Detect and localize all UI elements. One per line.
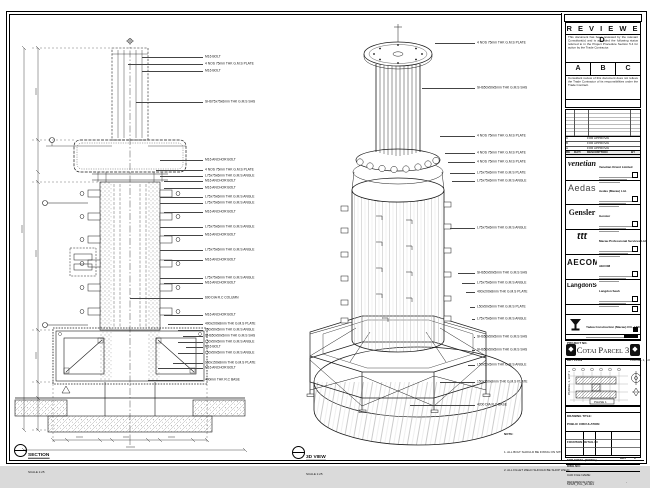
reviewed-stamp: R E V I E W E D This document has been r…	[565, 22, 641, 108]
company-checkbox	[632, 246, 638, 252]
leader-line	[468, 365, 475, 366]
leader-line	[173, 363, 203, 364]
leader-line	[136, 102, 203, 103]
rev-col-divider	[630, 110, 631, 136]
annotation-label: 4 NOS 75mm THK G.M.S PLATE	[205, 62, 254, 65]
status-option-c: C	[616, 63, 640, 75]
leader-line	[422, 88, 475, 89]
leader-line	[160, 176, 203, 177]
ttt-logo: ttt	[567, 233, 597, 241]
leader-line	[164, 212, 203, 213]
annotation-label: L50x50x5mm THK G.M.S ANGLE	[205, 351, 254, 354]
leader-line	[445, 153, 475, 154]
company-checkbox	[632, 221, 638, 227]
rev-description: FOR APPROVAL	[587, 137, 609, 139]
annotation-label: L50x50x5mm THK G.M.S ANGLE	[205, 340, 254, 343]
annotation-label: M16 ANCHOR BOLT	[205, 179, 236, 182]
iso-view: 4 NOS 75mm THK G.M.S PLATESHS50x50x5mm T…	[290, 10, 562, 460]
leader-line	[160, 203, 203, 204]
company-checkbox	[632, 271, 638, 277]
section-title-text: SECTION	[28, 453, 49, 459]
leader-line	[160, 227, 203, 228]
leader-line	[148, 380, 203, 381]
rev-date	[574, 142, 581, 144]
dwg-no-row: DWG NO: 51525_PCL_95-004 REV C	[566, 456, 640, 465]
leader-line	[160, 160, 203, 161]
project-title-banner: ◆ Cotai Parcel 3 ◆	[565, 339, 641, 360]
leader-line	[164, 315, 203, 316]
company-name: Aedas (Macau) Ltd.	[599, 190, 627, 193]
annotation-label: L75x75x6mm THK G.M.S ANGLE	[477, 226, 526, 229]
leader-line	[160, 278, 203, 279]
title-block-panel: DO NOT SCALE DRAWING. VERIFY ALL DIMENSI…	[561, 13, 644, 460]
company-row-aecom: AECOM AECOM	[565, 254, 641, 280]
status-option-b: B	[591, 63, 616, 75]
leader-line	[462, 283, 475, 284]
reference-label: REFERENCE DWG:	[567, 481, 595, 484]
key-plan-label: KEY PLAN	[567, 359, 582, 362]
annotation-label: M16 BOLT	[205, 345, 221, 348]
leader-line	[160, 250, 203, 251]
note-item-1: 1. ALL BOLT SHOULD BE FIXING ON SITE.	[504, 451, 563, 454]
leader-line	[450, 173, 475, 174]
annotation-label: SHS50x50x5mm THK G.M.S SHS	[477, 335, 527, 338]
annotation-label: L75x75x6mm THK G.M.S ANGLE	[205, 201, 254, 204]
rev-by	[631, 142, 636, 144]
annotation-label: SHS50x50x5mm THK G.M.S SHS	[477, 271, 527, 274]
leader-line	[160, 197, 203, 198]
contractor-logo-icon	[568, 317, 583, 332]
leader-line	[164, 188, 203, 189]
aecom-logo: AECOM	[567, 258, 597, 267]
leader-line	[472, 319, 475, 320]
annotation-label: L75x75x6mm THK G.M.S PLATE	[477, 171, 526, 174]
leader-line	[158, 368, 203, 369]
section-view-title: SECTION SCALE 1:25	[28, 444, 61, 480]
annotation-label: L75x75x6mm THK G.M.S ANGLE	[205, 248, 254, 251]
rev-letter: B	[566, 142, 570, 144]
annotation-label: L75x75x6mm THK G.M.S ANGLE	[477, 317, 526, 320]
leader-line	[178, 330, 203, 331]
leader-line	[183, 336, 203, 337]
iso-drawing	[290, 10, 562, 460]
section-detail-bubble	[14, 444, 27, 457]
annotation-label: 4200 DIA R.C BASE	[477, 403, 507, 406]
rev-value: C	[634, 457, 636, 460]
rev-description: FOR APPROVAL	[587, 142, 609, 144]
rev-col-divider	[574, 110, 575, 136]
drawing-title-label: DRAWING TITLE:	[567, 415, 592, 418]
project-title: Cotai Parcel 3	[577, 345, 629, 355]
leader-line	[164, 283, 203, 284]
annotation-label: 4 NOS 75mm THK G.M.S PLATE	[477, 41, 526, 44]
drawing-title-line-2: FOUNTAIN DETAIL IN	[567, 441, 598, 444]
annotation-label: 4 NOS 75mm THK G.M.S PLATE	[477, 151, 526, 154]
annotation-label: L75x75x6mm THK G.M.S ANGLE	[477, 281, 526, 284]
iso-title-text: 3D VIEW	[306, 455, 326, 461]
key-plan-phase: PHASE 1	[594, 401, 607, 404]
company-name: Macau Professional Services Ltd.	[599, 240, 647, 243]
annotation-label: 600 DIA R.C COLUMN	[205, 296, 239, 299]
annotation-label: L75x75x6mm THK G.M.S ANGLE	[205, 174, 254, 177]
annotation-label: 400mm THK R.C BASE	[205, 378, 240, 381]
company-row-venetian: venetian Venetian Orient Limited	[565, 154, 641, 181]
leader-line	[458, 273, 475, 274]
leader-line	[440, 382, 475, 383]
key-plan-parcel-label: PARCEL 1, LOT 2	[630, 359, 650, 362]
revision-table-empty	[565, 109, 641, 137]
venetian-logo: venetian	[567, 159, 597, 168]
annotation-label: L75x75x6mm THK G.M.S ANGLE	[205, 225, 254, 228]
annotation-label: 400x200x8mm THK G.M.S PLATE	[205, 322, 255, 325]
annotation-label: 4 NOS 75mm THK G.M.S PLATE	[477, 134, 526, 137]
annotation-label: M16 ANCHOR BOLT	[205, 233, 236, 236]
revision-rows: C FOR APPROVAL B FOR APPROVAL A FOR APPR…	[565, 136, 641, 151]
leader-line	[164, 181, 203, 182]
annotation-label: L75x75x6mm THK G.M.S ANGLE	[477, 179, 526, 182]
leader-line	[164, 235, 203, 236]
status-option-a: A	[566, 63, 591, 75]
annotation-label: M16 ANCHOR BOLT	[205, 281, 236, 284]
leader-line	[452, 181, 475, 182]
annotation-label: 150x150x8mm THK G.M.S PLATE	[205, 361, 255, 364]
key-plan-parcel-side: PARCEL 1, LOT 1	[568, 371, 571, 395]
rev-by	[631, 137, 636, 139]
annotation-label: L75x75x6mm THK G.M.S ANGLE	[205, 276, 254, 279]
project-no-value-block	[624, 334, 638, 338]
rev-label: REV	[620, 457, 626, 460]
leader-line	[474, 337, 475, 338]
section-view: M16 BOLT4 NOS 75mm THK G.M.S PLATEM16 BO…	[8, 10, 290, 460]
banner-ornament-right: ◆	[630, 344, 640, 356]
note-item-2: 2. ALL FILLET WELD SHOULD BE SHOP WELD.	[504, 469, 570, 472]
company-checkbox	[632, 296, 638, 302]
leader-line	[186, 347, 203, 348]
leader-line	[178, 353, 203, 354]
annotation-label: M16 ANCHOR BOLT	[205, 158, 236, 161]
section-drawing	[8, 10, 290, 460]
reviewed-paragraph-1: This document has been reviewed by the r…	[566, 35, 640, 62]
rev-col-divider	[588, 110, 589, 136]
disclaimer-strip: DO NOT SCALE DRAWING. VERIFY ALL DIMENSI…	[564, 14, 642, 22]
gensler-logo: Gensler	[567, 208, 597, 217]
leader-line	[440, 136, 475, 137]
company-name: Venetian Orient Limited	[599, 166, 633, 169]
iso-scale-text: SCALE 1:25	[306, 473, 323, 476]
contractor-block: Yadea Construction (Macau) CO., LTD.	[565, 314, 641, 335]
company-checkbox	[632, 172, 638, 178]
status-options: A B C	[566, 62, 640, 76]
rev-letter: C	[566, 137, 570, 139]
annotation-label: L50x50x5mm THK G.M.S PLATE	[477, 305, 526, 308]
company-row-langdon-seah: LangdonSeah Langdon Seah	[565, 279, 641, 305]
reviewed-paragraph-2: Consultant review of this document does …	[566, 76, 640, 99]
banner-ornament-left: ◆	[566, 344, 576, 356]
annotation-label: M16 ANCHOR BOLT	[205, 258, 236, 261]
annotation-label: L50x50x5mm THK G.M.S ANGLE	[205, 328, 254, 331]
annotation-label: M16 ANCHOR BOLT	[205, 186, 236, 189]
leader-line	[178, 342, 203, 343]
leader-line	[466, 292, 475, 293]
leader-line	[410, 405, 475, 406]
company-row-aedas: Aedas Aedas (Macau) Ltd.	[565, 179, 641, 205]
leader-line	[448, 162, 475, 163]
drawing-sheet-canvas: M16 BOLT4 NOS 75mm THK G.M.S PLATEM16 BO…	[0, 0, 650, 488]
annotation-label: 4 NOS 75mm THK G.M.S PLATE	[477, 160, 526, 163]
leader-line	[470, 307, 475, 308]
reviewed-title: R E V I E W E D	[566, 23, 640, 35]
company-name: Langdon Seah	[599, 290, 620, 293]
dwg-no-label: DWG NO:	[567, 465, 581, 468]
annotation-label: SHS50x50x5mm THK G.M.S SHS	[205, 334, 255, 337]
annotation-label: M16 ANCHOR BOLT	[205, 313, 236, 316]
leader-line	[472, 350, 475, 351]
leader-line	[130, 298, 203, 299]
company-checkbox	[632, 196, 638, 202]
annotation-label: 150x150x8mm THK G.M.S PLATE	[477, 380, 527, 383]
annotation-label: M16 BOLT	[205, 69, 221, 72]
drawing-title-block: DRAWING TITLE: PUBLIC CIRCULATION FOUNTA…	[565, 405, 641, 458]
annotation-label: M16 BOLT	[205, 55, 221, 58]
key-plan-drawing	[566, 366, 645, 405]
annotation-label: L50x50x5mm THK G.M.S ANGLE	[477, 363, 526, 366]
general-notes: NOTE: 1. ALL BOLT SHOULD BE FIXING ON SI…	[504, 424, 560, 478]
annotation-label: L75x75x6mm THK G.M.S ANGLE	[205, 195, 254, 198]
cad-file-label: CAD FILE NAME:	[567, 474, 591, 477]
drawing-title-line-1: PUBLIC CIRCULATION	[567, 423, 599, 426]
leader-line	[168, 324, 203, 325]
annotation-label: SHS75x75x6mm THK G.M.S SHS	[205, 100, 255, 103]
annotation-label: SHS50x50x5mm THK G.M.S SHS	[477, 86, 527, 89]
key-plan-box: KEY PLAN PARCEL 1, LOT 2	[565, 358, 641, 407]
annotation-label: M16 ANCHOR BOLT	[205, 210, 236, 213]
reviewed-paragraph-1-text: This document has been reviewed by the r…	[568, 36, 638, 50]
key-plan-header: KEY PLAN PARCEL 1, LOT 2	[566, 359, 640, 366]
contractor-stamp-block	[633, 327, 638, 332]
annotation-label: 400x200x8mm THK G.M.S PLATE	[477, 290, 527, 293]
aedas-logo: Aedas	[567, 183, 597, 193]
company-checkbox	[632, 306, 638, 312]
company-row-macau-professional: ttt Macau Professional Services Ltd.	[565, 229, 641, 255]
iso-detail-bubble	[292, 446, 305, 459]
langdon-seah-logo: LangdonSeah	[567, 283, 597, 289]
leader-line	[142, 57, 203, 58]
annotation-label: M16 ANCHOR BOLT	[205, 366, 236, 369]
iso-view-title: 3D VIEW SCALE 1:25	[306, 446, 339, 482]
section-scale-text: SCALE 1:25	[28, 471, 45, 474]
rev-date	[574, 137, 581, 139]
leader-line	[142, 71, 203, 72]
reviewed-paragraph-2-text: Consultant review of this document does …	[568, 77, 638, 88]
leader-line	[435, 43, 475, 44]
leader-line	[156, 170, 203, 171]
company-name: Gensler	[599, 215, 610, 218]
annotation-label: SHS50x50x5mm THK G.M.S SHS	[477, 348, 527, 351]
leader-line	[450, 228, 475, 229]
company-row-gensler: Gensler Gensler	[565, 204, 641, 230]
company-name: AECOM	[599, 265, 610, 268]
leader-line	[128, 64, 203, 65]
leader-line	[164, 260, 203, 261]
annotation-label: 4 NOS 75mm THK G.M.S PLATE	[205, 168, 254, 171]
note-title: NOTE:	[504, 433, 513, 436]
